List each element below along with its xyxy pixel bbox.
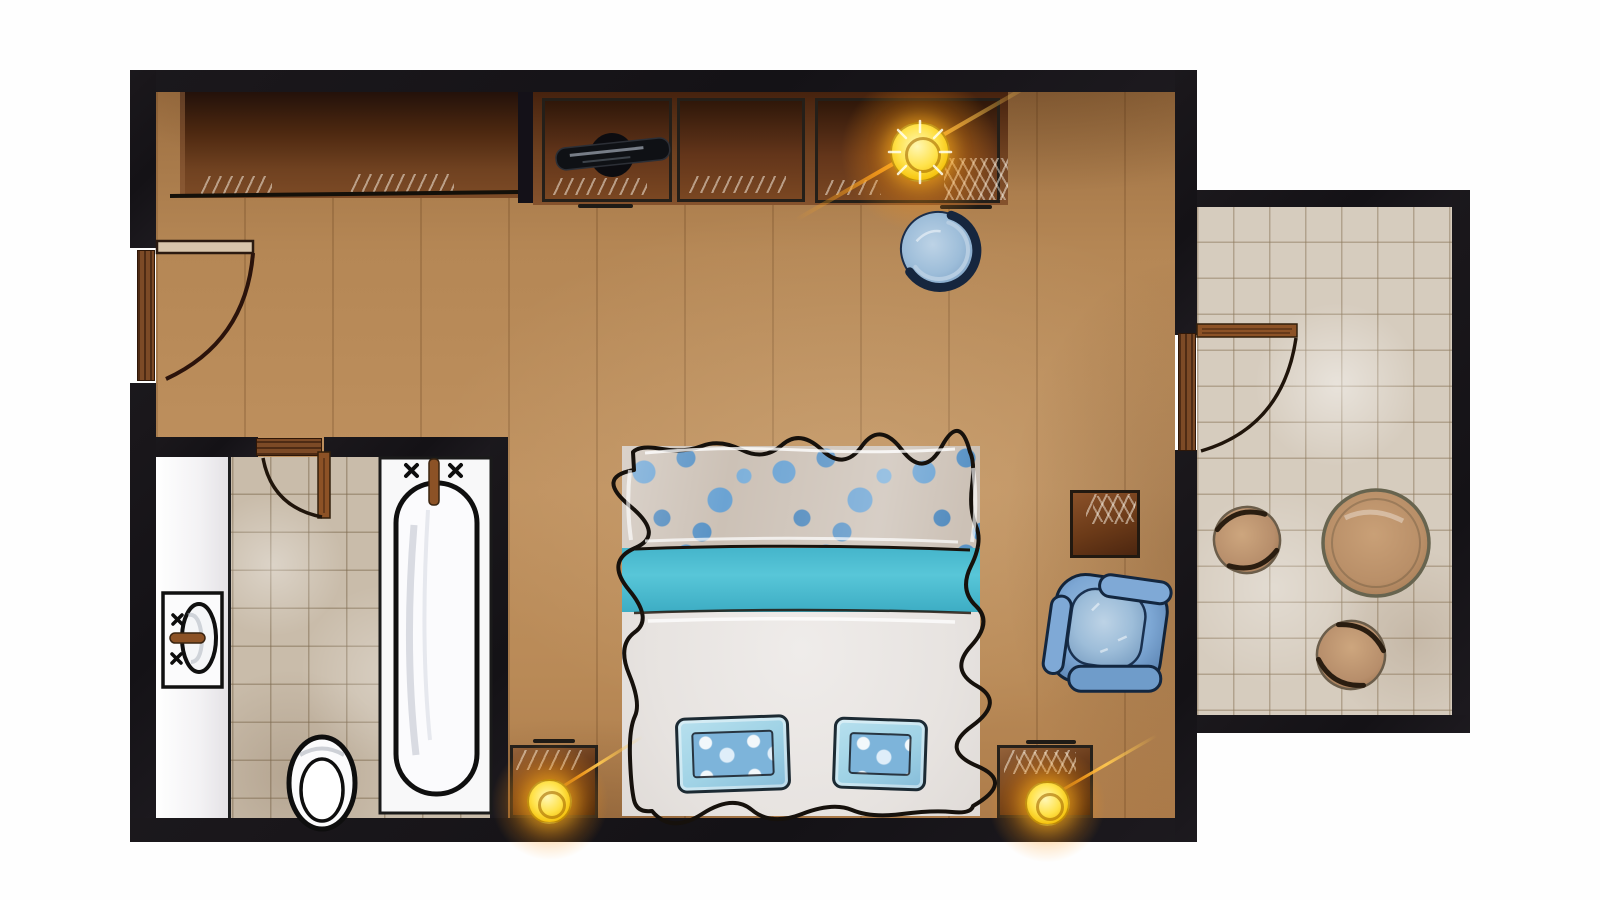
pillow-panel (691, 730, 775, 779)
glass-reflection (552, 178, 647, 195)
glass-reflection (350, 174, 454, 194)
cabinet-partition (518, 92, 533, 203)
bathroom-wall-right (490, 437, 508, 818)
lamp-inner-ring (538, 791, 566, 819)
cabinet-handle (578, 204, 633, 208)
balcony-door-jamb (1178, 333, 1196, 451)
nightstand-handle (1026, 740, 1076, 744)
bathroom-door-threshold (256, 438, 322, 456)
teal-runner (622, 548, 980, 612)
double-bed (622, 446, 980, 816)
wall-top (130, 70, 1197, 92)
entry-door-jamb (137, 250, 155, 381)
balcony-wall-top (1197, 190, 1470, 207)
glass-reflection (200, 176, 272, 194)
lamp-inner-ring (1036, 793, 1064, 821)
pillow-panel (848, 732, 911, 776)
wall-right-upper (1175, 70, 1197, 335)
bathroom-wall-top-left (156, 437, 258, 457)
floral-bedspread (622, 446, 980, 548)
floor-plan (0, 0, 1600, 900)
bathroom-wall-top-right (324, 437, 490, 457)
balcony-floor (1197, 207, 1452, 715)
accent-pillow-left (675, 714, 792, 794)
wall-right-lower (1175, 450, 1197, 842)
glass-reflection (1093, 496, 1135, 522)
balcony-wall-bottom (1197, 715, 1470, 733)
lamp-inner-ring (905, 137, 941, 173)
vanity-counter (156, 457, 231, 818)
glass-reflection (688, 176, 786, 193)
balcony-wall-right (1452, 190, 1470, 733)
accent-pillow-right (832, 716, 928, 791)
wall-left-lower (130, 383, 156, 842)
wall-left-upper (130, 70, 156, 248)
